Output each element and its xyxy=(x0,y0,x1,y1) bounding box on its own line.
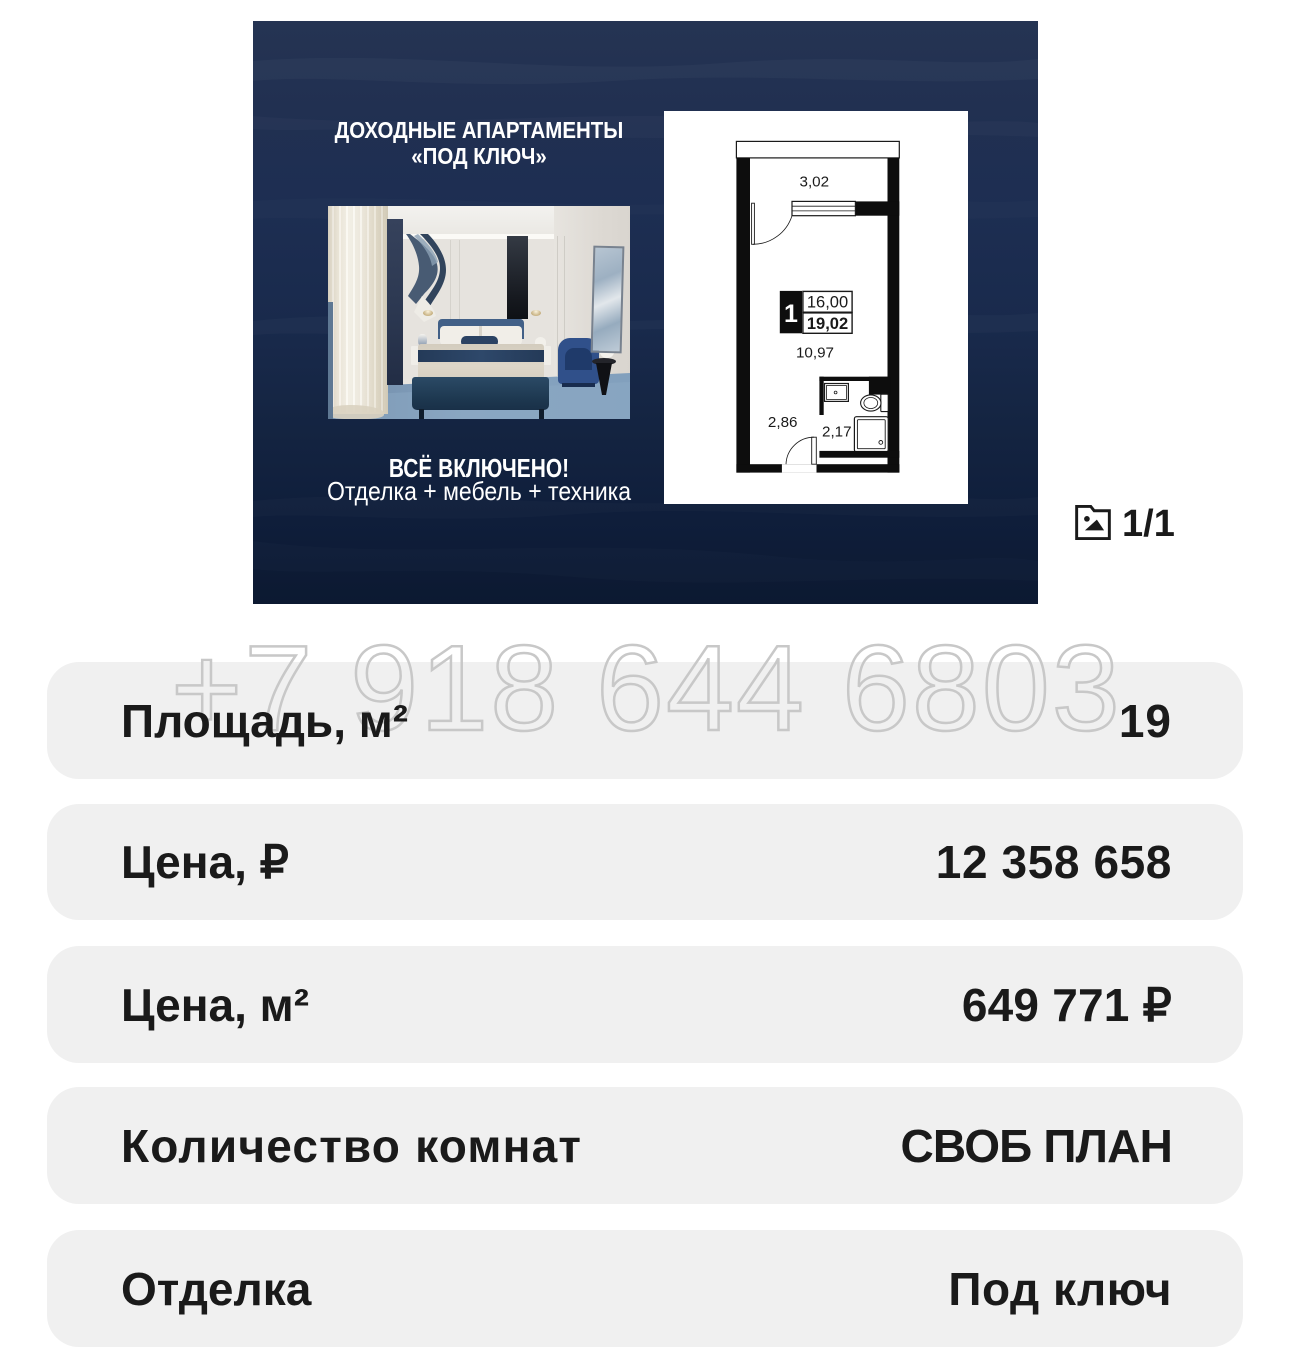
svg-text:1: 1 xyxy=(784,300,798,328)
svg-text:2,17: 2,17 xyxy=(822,423,852,440)
svg-text:16,00: 16,00 xyxy=(807,294,848,312)
svg-text:2,86: 2,86 xyxy=(768,414,798,431)
svg-text:19,02: 19,02 xyxy=(807,315,848,333)
svg-text:10,97: 10,97 xyxy=(796,344,834,361)
svg-text:3,02: 3,02 xyxy=(800,173,830,190)
